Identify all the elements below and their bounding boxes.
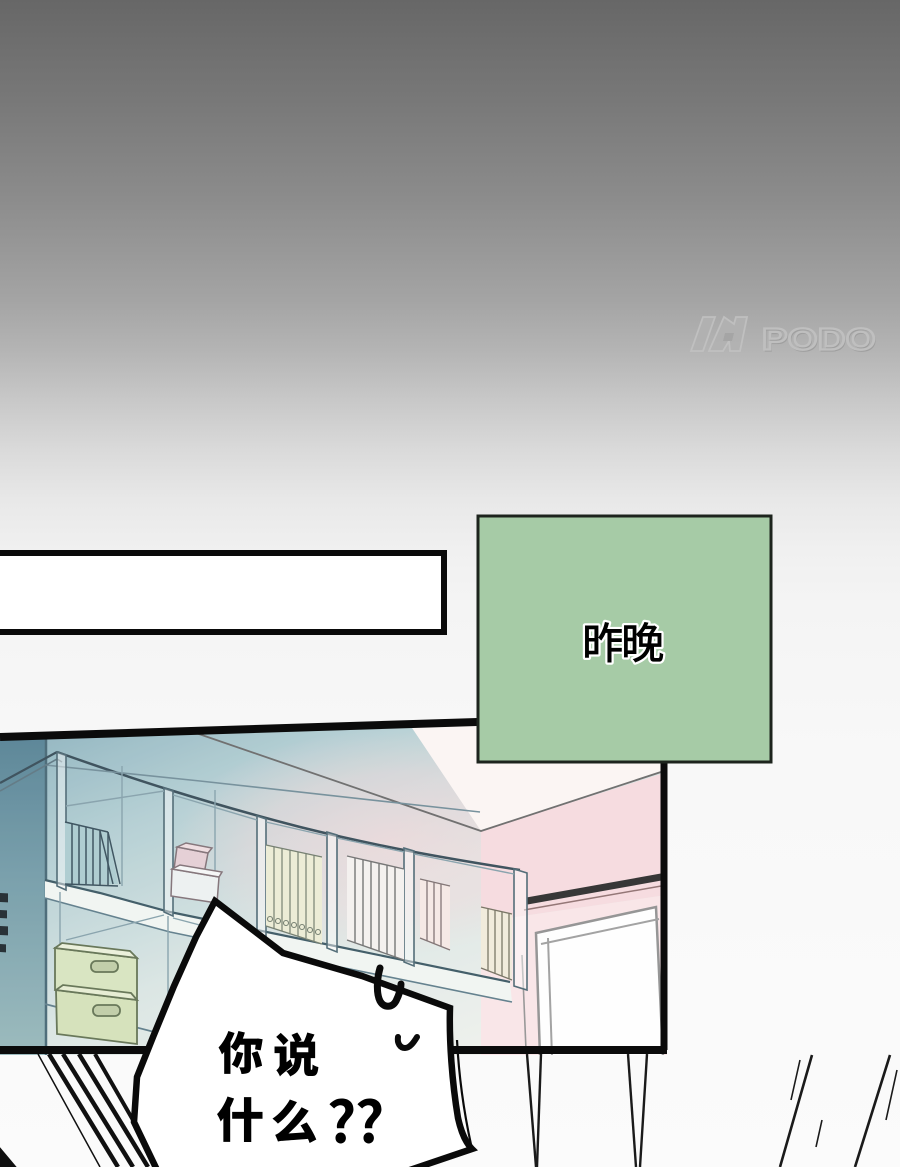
svg-text:PODO: PODO [762, 323, 876, 357]
